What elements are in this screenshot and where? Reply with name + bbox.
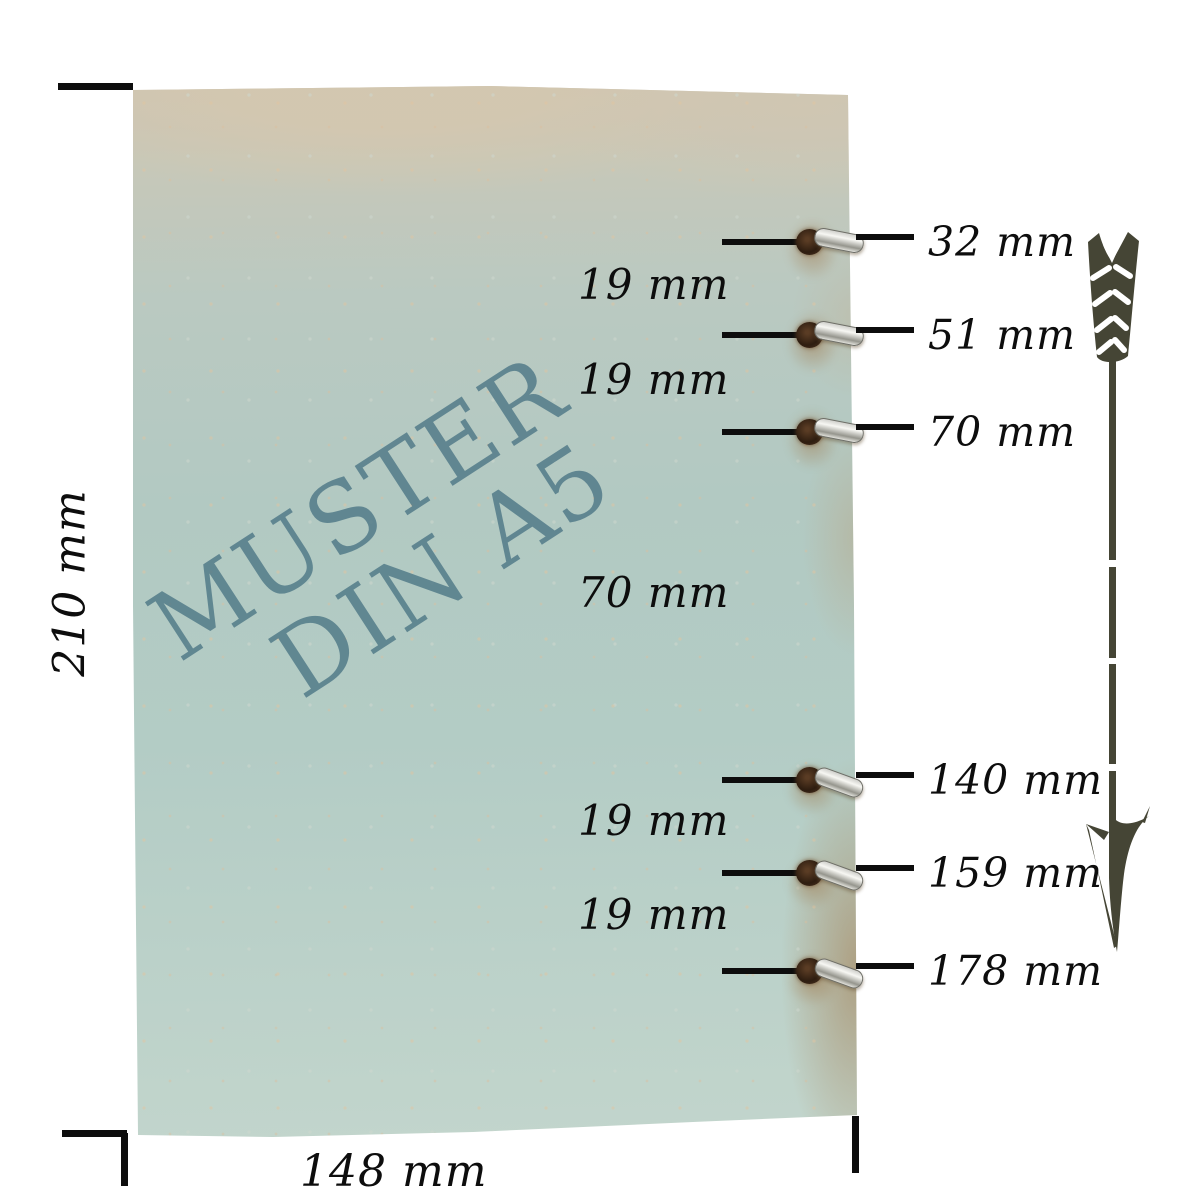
leader-line-left [722, 968, 798, 974]
arrow-shaft [1109, 356, 1116, 824]
leader-line-right [856, 327, 914, 333]
hole-measurement-label: 32 mm [928, 218, 1076, 266]
leader-line-right [856, 963, 914, 969]
gap-measurement-label-3: 70 mm [578, 568, 729, 617]
leader-line-left [722, 429, 798, 435]
gap-measurement-label-2: 19 mm [578, 355, 729, 404]
hole-measurement-label: 51 mm [928, 311, 1076, 359]
height-dimension-label: 210 mm [45, 489, 96, 676]
leader-line-right [856, 772, 914, 778]
arrow-head [1109, 804, 1149, 952]
gap-measurement-label-5: 19 mm [578, 890, 729, 939]
dimension-tick-bottom-right-vertical [852, 1116, 859, 1173]
dimension-tick-bottom-left-vertical [121, 1133, 128, 1186]
leader-line-right [856, 424, 914, 430]
dimension-tick-top-left [58, 83, 133, 90]
hole-measurement-label: 140 mm [928, 756, 1103, 804]
gap-measurement-label-1: 19 mm [578, 260, 729, 309]
width-dimension-label: 148 mm [300, 1146, 487, 1197]
leader-line-right [856, 865, 914, 871]
leader-line-left [722, 777, 798, 783]
hole-measurement-label: 159 mm [928, 849, 1103, 897]
leader-line-left [722, 239, 798, 245]
hole-measurement-label: 178 mm [928, 947, 1103, 995]
leader-line-left [722, 870, 798, 876]
dimension-tick-bottom-left-horizontal [62, 1130, 127, 1137]
paper-watermark: MUSTER DIN A5 [130, 337, 639, 763]
gap-measurement-label-4: 19 mm [578, 796, 729, 845]
leader-line-right [856, 234, 914, 240]
diagram-canvas: MUSTER DIN A5 32 mm 51 mm 70 mm 140 mm [0, 0, 1200, 1200]
leader-line-left [722, 332, 798, 338]
hole-measurement-label: 70 mm [928, 408, 1076, 456]
decorative-down-arrow-icon [1072, 230, 1154, 954]
